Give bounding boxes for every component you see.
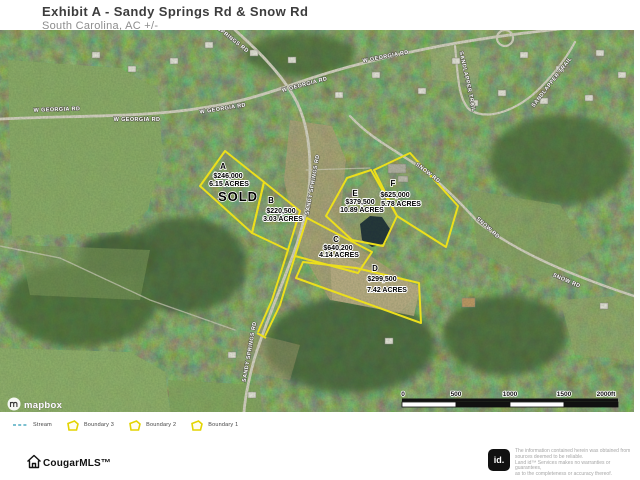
parcel-c-acres: 4.14 ACRES (319, 252, 359, 259)
mapbox-attribution: mapbox (8, 398, 63, 412)
parcel-a-acres: 6.15 ACRES (209, 181, 249, 188)
scale-tick-1500: 1500 (557, 391, 572, 398)
legend-label: Boundary 3 (84, 422, 114, 428)
map-legend: Stream Boundary 3 Boundary 2 Boundary 1 (0, 412, 640, 438)
legend-label: Stream (33, 422, 52, 428)
exhibit-page: Exhibit A - Sandy Springs Rd & Snow Rd S… (0, 0, 640, 480)
scale-tick-1000: 1000 (503, 391, 518, 398)
parcel-f-price: $625,000 (380, 192, 409, 199)
brand-text: CougarMLS™ (43, 458, 111, 469)
legend-label: Boundary 2 (146, 422, 176, 428)
parcel-e-acres: 10.89 ACRES (340, 207, 384, 214)
parcel-b-price: $220,500 (266, 208, 295, 215)
land-id-logo: id. (488, 449, 510, 471)
parcel-e-id: E (352, 189, 358, 198)
road-label-w-georgia: W GEORGIA RD (114, 117, 161, 123)
legend-item-boundary-3: Boundary 3 (66, 420, 114, 431)
scale-tick-500: 500 (451, 391, 462, 398)
title-block: Exhibit A - Sandy Springs Rd & Snow Rd S… (42, 4, 308, 32)
scale-tick-0: 0 (401, 391, 405, 398)
legend-item-boundary-1: Boundary 1 (190, 420, 238, 431)
parcel-e-price: $379,500 (345, 199, 374, 206)
parcel-a-id: A (220, 162, 226, 171)
legend-label: Boundary 1 (208, 422, 238, 428)
map-container: A $246,000 6.15 ACRES SOLD B $220,500 3.… (0, 30, 634, 412)
parcel-b-acres: 3.03 ACRES (263, 216, 303, 223)
parcel-c-id: C (333, 235, 339, 244)
disclaimer: The information contained herein was obt… (515, 449, 637, 478)
parcel-f-id: F (391, 179, 396, 188)
disclaimer-line: as to the completeness or accuracy there… (515, 472, 637, 478)
boundary-polygon-icon (190, 420, 203, 431)
boundary-polygon-icon (66, 420, 79, 431)
land-id-text: id. (494, 455, 505, 465)
footer-bar: CougarMLS™ id. The information contained… (0, 438, 640, 480)
mapbox-wordmark: mapbox (24, 400, 63, 411)
map-canvas[interactable]: A $246,000 6.15 ACRES SOLD B $220,500 3.… (0, 30, 634, 412)
parcel-d-id: D (372, 264, 378, 273)
stream-icon (12, 421, 28, 429)
parcel-f-acres: 5.78 ACRES (381, 201, 421, 208)
boundary-polygon-icon (128, 420, 141, 431)
parcel-d-price: $299,500 (367, 276, 396, 283)
exhibit-title: Exhibit A - Sandy Springs Rd & Snow Rd (42, 4, 308, 19)
legend-item-stream: Stream (12, 421, 52, 429)
parcel-d-acres: 7.42 ACRES (367, 287, 407, 294)
house-icon (26, 454, 42, 469)
parcel-a-price: $246,000 (213, 173, 242, 180)
scale-tick-2000ft: 2000ft (597, 391, 617, 398)
legend-item-boundary-2: Boundary 2 (128, 420, 176, 431)
parcel-b-id: B (268, 196, 274, 205)
cougar-mls-logo: CougarMLS™ (26, 454, 111, 469)
parcel-a-status: SOLD (218, 189, 258, 204)
satellite-basemap (0, 30, 634, 412)
parcel-c-price: $640,200 (323, 245, 352, 252)
